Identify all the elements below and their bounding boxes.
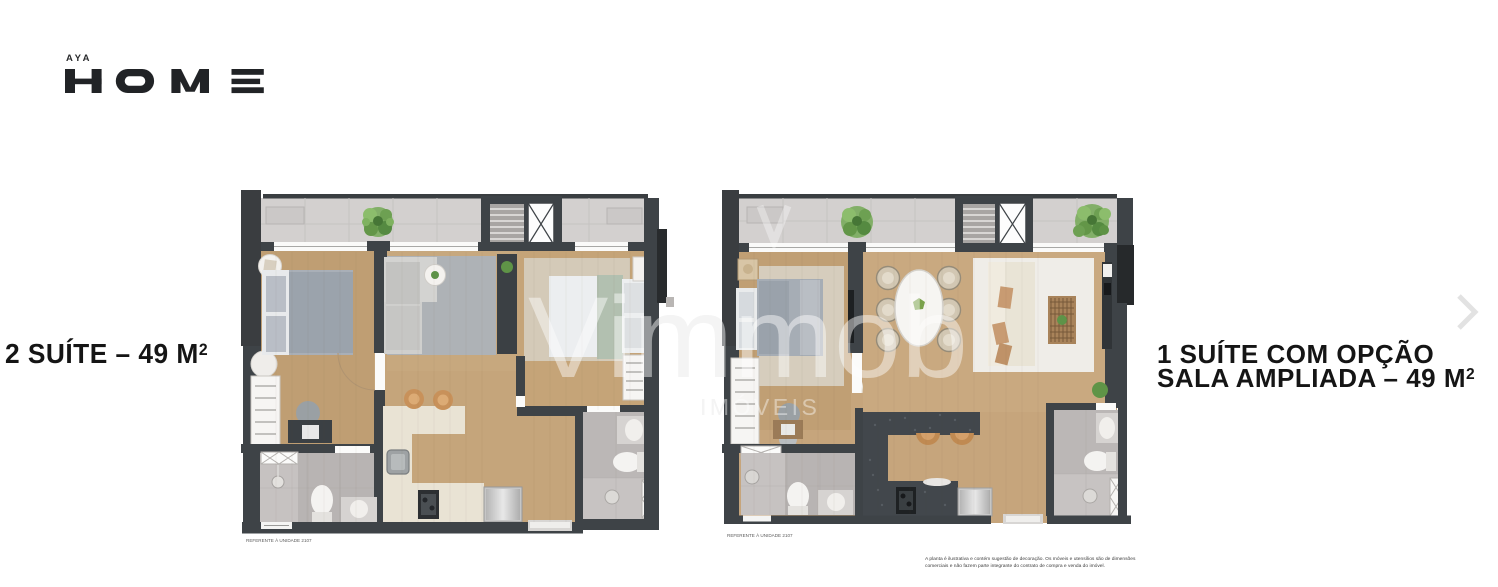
svg-text:REFERENTE À UNIDADE 2107: REFERENTE À UNIDADE 2107 [246,537,312,543]
svg-text:Vimmob: Vimmob [528,274,968,402]
svg-text:REFERENTE À UNIDADE 2107: REFERENTE À UNIDADE 2107 [727,532,793,538]
svg-text:A planta é ilustrativa e conté: A planta é ilustrativa e contém sugestão… [925,556,1136,562]
svg-text:comerciais e não fazem parte i: comerciais e não fazem parte integrante … [925,563,1105,569]
svg-text:IMÓVEIS: IMÓVEIS [700,394,820,420]
